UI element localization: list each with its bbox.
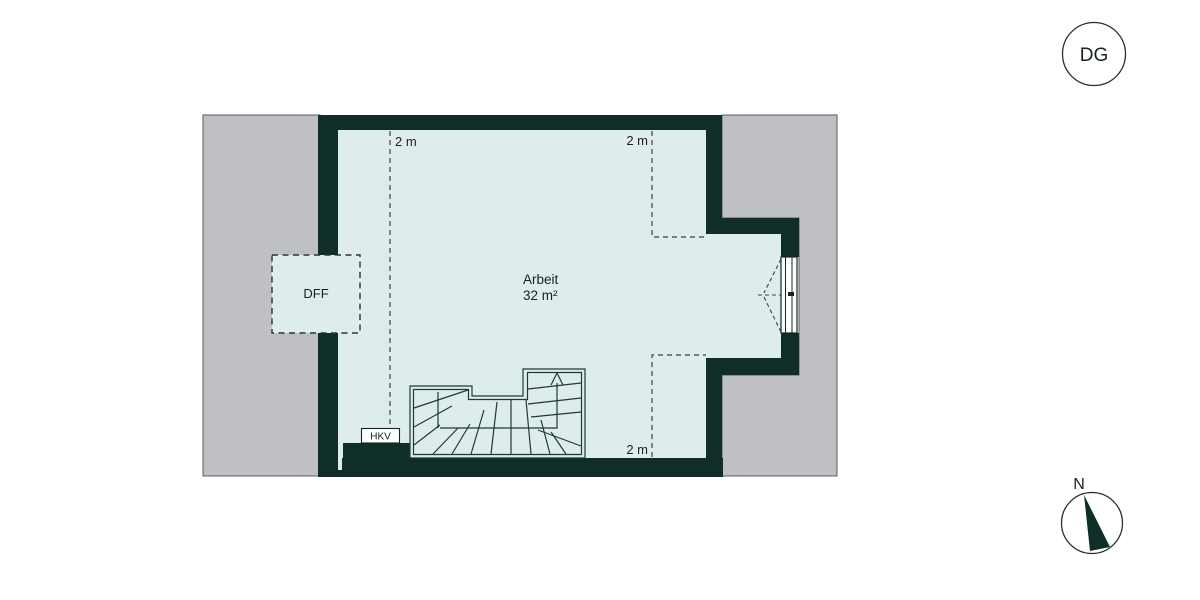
hkv-label: HKV — [370, 432, 391, 443]
wall-right-lower — [706, 358, 722, 477]
wall-bottom-corner — [337, 470, 343, 477]
wall-right-upper — [706, 115, 722, 218]
height-label-bottom-right: 2 m — [626, 442, 648, 457]
room-name: Arbeit — [523, 272, 559, 287]
wall-left-lower — [318, 333, 338, 477]
roof-window-label: DFF — [303, 286, 328, 301]
wall-bay-bottom — [722, 358, 799, 375]
floor-level-badge: DG — [1063, 23, 1126, 86]
heating-manifold: HKV — [362, 429, 400, 444]
wall-bay-top — [706, 218, 799, 234]
height-label-top-right: 2 m — [626, 133, 648, 148]
compass: N — [1062, 476, 1123, 554]
badge-label: DG — [1080, 45, 1109, 66]
room-area: 32 m² — [523, 288, 558, 303]
window-handle — [788, 292, 794, 296]
wall-left-upper — [318, 130, 338, 255]
floor-plan-page: HKV Arbeit 32 m² DFF — [0, 0, 1200, 600]
floor-plan-canvas: HKV Arbeit 32 m² DFF — [0, 0, 1200, 600]
compass-north-label: N — [1073, 476, 1085, 493]
height-label-left: 2 m — [395, 134, 417, 149]
wall-top — [318, 115, 722, 130]
wall-bottom-left-block — [343, 443, 410, 477]
wall-above-window — [781, 234, 799, 257]
